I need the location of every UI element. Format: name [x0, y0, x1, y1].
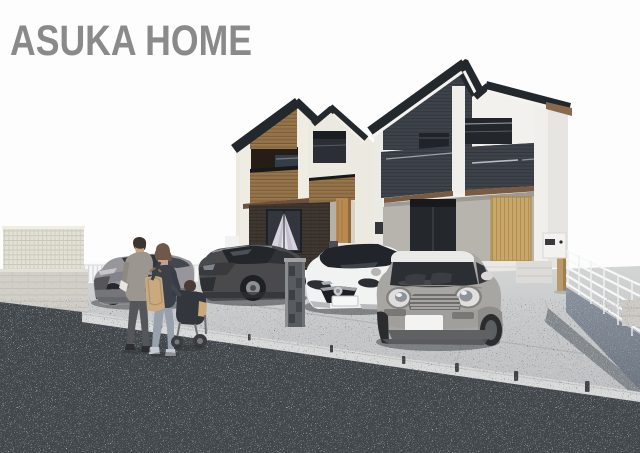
svg-text:ASUKA HOME: ASUKA HOME — [10, 17, 252, 65]
